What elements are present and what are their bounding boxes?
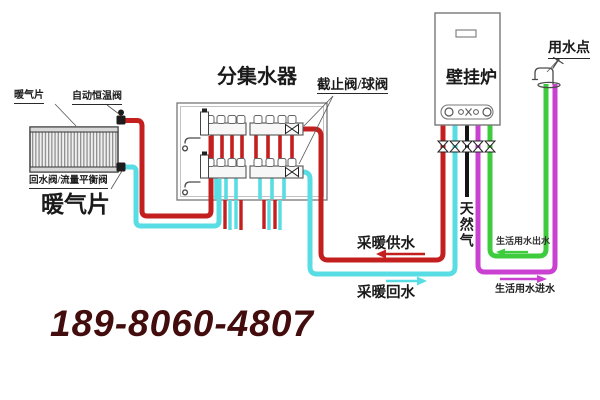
valve-gas xyxy=(462,141,472,152)
manifold-title: 分集水器 xyxy=(217,67,297,88)
valve-dhw-inlet xyxy=(473,141,483,152)
manifold-loop-pipes xyxy=(212,135,292,230)
stop-ball-valve-label: 截止阀/球阀 xyxy=(317,78,388,94)
valve-supply xyxy=(438,141,448,152)
water-point-label: 用水点 xyxy=(548,42,590,59)
drain-cock-lower xyxy=(183,182,200,195)
heating-supply-label: 采暖供水 xyxy=(357,237,415,252)
air-vent-valve-lower xyxy=(201,155,209,178)
thermostatic-valve-label: 自动恒温阀 xyxy=(72,92,122,105)
return-balance-valve-label: 回水阀/流量平衡阀 xyxy=(29,177,108,189)
boiler-label: 壁挂炉 xyxy=(446,69,497,87)
air-vent-valve-upper xyxy=(201,112,209,135)
dhw-outlet-label: 生活用水出水 xyxy=(496,237,550,246)
heating-return-label: 采暖回水 xyxy=(357,286,415,301)
dhw-inlet-label: 生活用水进水 xyxy=(495,285,555,296)
phone-number: 189-8060-4807 xyxy=(50,303,314,345)
radiator-tag-label: 暖气片 xyxy=(14,91,44,104)
valve-dhw-outlet xyxy=(485,141,495,152)
radiator-title: 暖气片 xyxy=(41,193,110,217)
boiler-valves xyxy=(438,141,495,152)
manifold-cabinet xyxy=(177,103,327,200)
radiator xyxy=(30,110,126,173)
heating-system-diagram: 暖气片 自动恒温阀 回水阀/流量平衡阀 暖气片 分集水器 截止阀/球阀 壁挂炉 … xyxy=(0,0,600,400)
boiler-display xyxy=(456,30,476,37)
drain-cock-upper xyxy=(183,138,200,151)
return-balance-valve xyxy=(117,163,126,172)
valve-return xyxy=(450,141,460,152)
natural-gas-label: 天然气 xyxy=(457,201,472,249)
thermostatic-valve xyxy=(117,116,126,125)
boiler-control-panel xyxy=(441,105,493,119)
manifold-box-outer xyxy=(177,103,327,200)
faucet xyxy=(533,58,564,88)
